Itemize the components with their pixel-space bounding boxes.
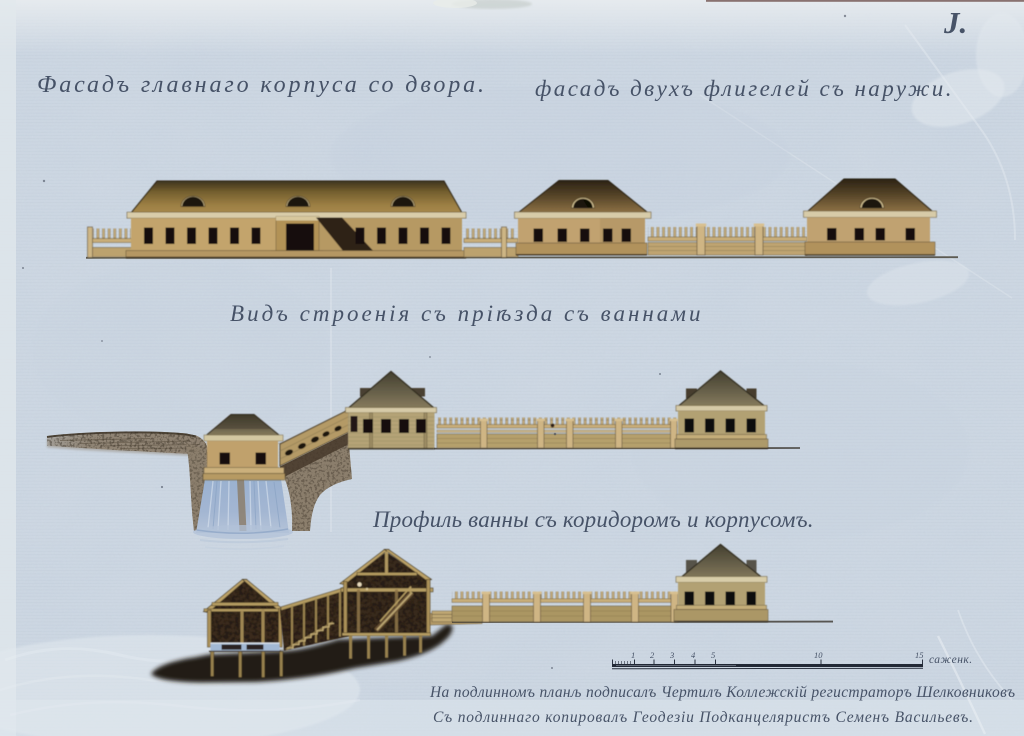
svg-text:фасадъ двухъ флигелей съ наруж: фасадъ двухъ флигелей съ наружи. bbox=[535, 76, 954, 101]
svg-text:Видъ строенія съ пріѣзда съ ва: Видъ строенія съ пріѣзда съ ваннами bbox=[230, 301, 703, 326]
svg-text:Фасадъ главнаго корпуса со дво: Фасадъ главнаго корпуса со двора. bbox=[37, 72, 487, 98]
svg-text:Съ подлиннаго копировалъ Геоде: Съ подлиннаго копировалъ Геодезіи Подкан… bbox=[433, 709, 974, 726]
svg-text:саженк.: саженк. bbox=[929, 654, 973, 666]
svg-text:10: 10 bbox=[814, 650, 823, 660]
svg-text:15: 15 bbox=[915, 650, 924, 660]
svg-text:5: 5 bbox=[711, 650, 715, 660]
svg-text:На подлинномъ планљ подписалъ: На подлинномъ планљ подписалъ Чертилъ Ко… bbox=[429, 684, 1016, 701]
svg-text:J.: J. bbox=[943, 5, 967, 40]
svg-text:1: 1 bbox=[631, 650, 635, 660]
svg-text:Профиль ванны съ коридоромъ и: Профиль ванны съ коридоромъ и корпусомъ. bbox=[372, 507, 816, 532]
svg-text:3: 3 bbox=[669, 650, 674, 660]
